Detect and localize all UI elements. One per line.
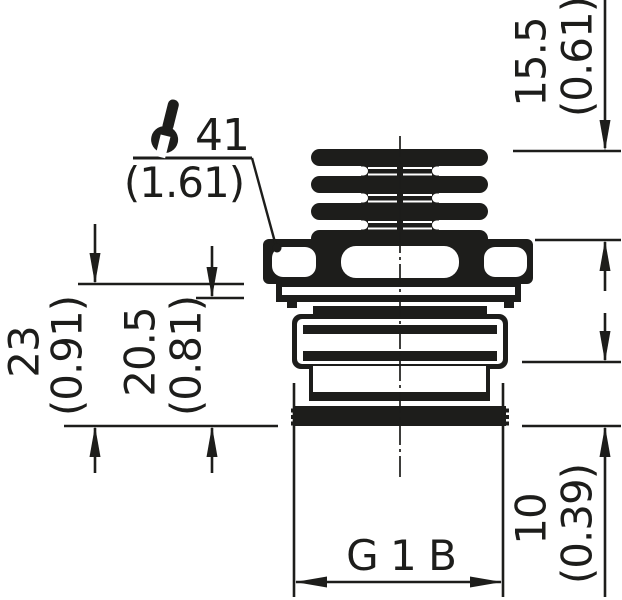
label-10-inch: (0.39) xyxy=(553,464,602,584)
label-10-mm: 10 xyxy=(507,493,556,544)
label-41-inch: (1.61) xyxy=(124,158,244,207)
wrench-icon xyxy=(147,97,187,161)
label-20-5-mm: 20.5 xyxy=(116,307,165,397)
leader-line xyxy=(252,158,276,246)
label-23-mm: 23 xyxy=(0,326,49,377)
hex-nut xyxy=(263,239,533,284)
leader-dot xyxy=(273,244,282,253)
label-thread-designation: G 1 B xyxy=(346,531,456,580)
label-41-mm: 41 xyxy=(195,110,249,161)
label-20-5-inch: (0.81) xyxy=(162,296,211,416)
technical-drawing-canvas: 41 (1.61) 15.5 (0.61) 23 (0.91) 20.5 (0.… xyxy=(0,0,622,600)
label-15-5-mm: 15.5 xyxy=(507,17,556,107)
dimensional-drawing: 41 (1.61) 15.5 (0.61) 23 (0.91) 20.5 (0.… xyxy=(0,0,622,600)
part-figure xyxy=(263,136,533,478)
label-15-5-inch: (0.61) xyxy=(553,0,602,117)
washer xyxy=(276,282,521,308)
label-23-inch: (0.91) xyxy=(43,296,92,416)
